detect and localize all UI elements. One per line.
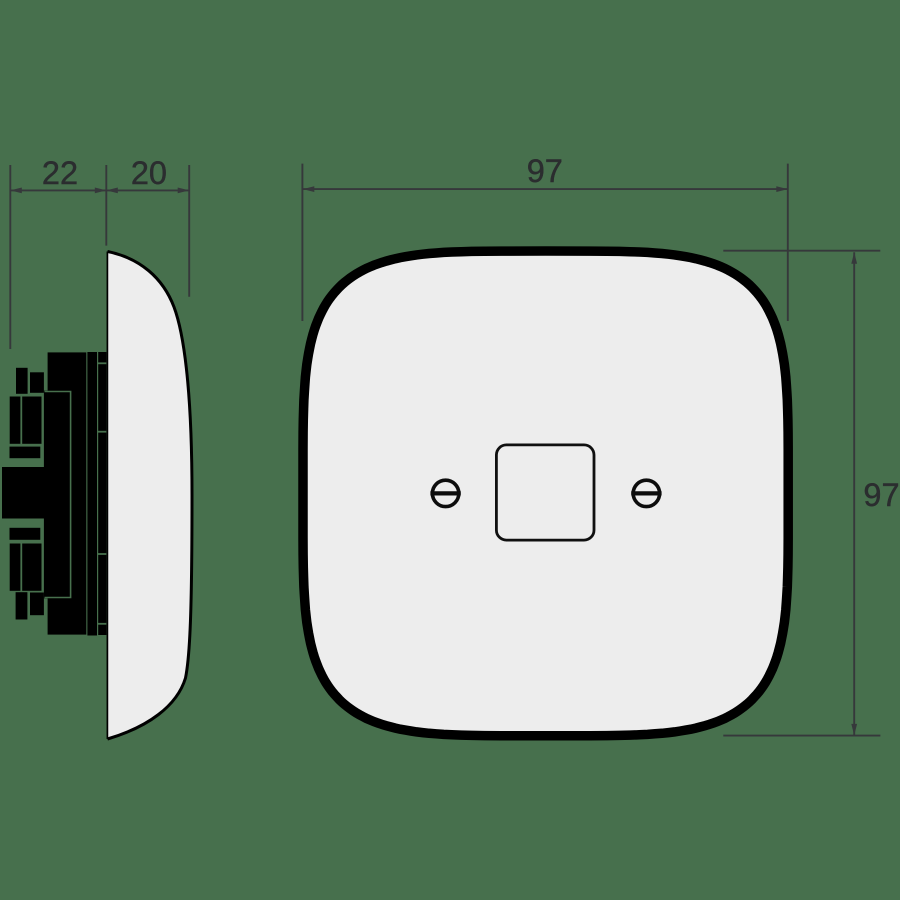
svg-text:22: 22 <box>42 155 78 191</box>
svg-text:97: 97 <box>863 477 899 513</box>
svg-text:97: 97 <box>527 153 563 189</box>
svg-text:20: 20 <box>131 155 167 191</box>
